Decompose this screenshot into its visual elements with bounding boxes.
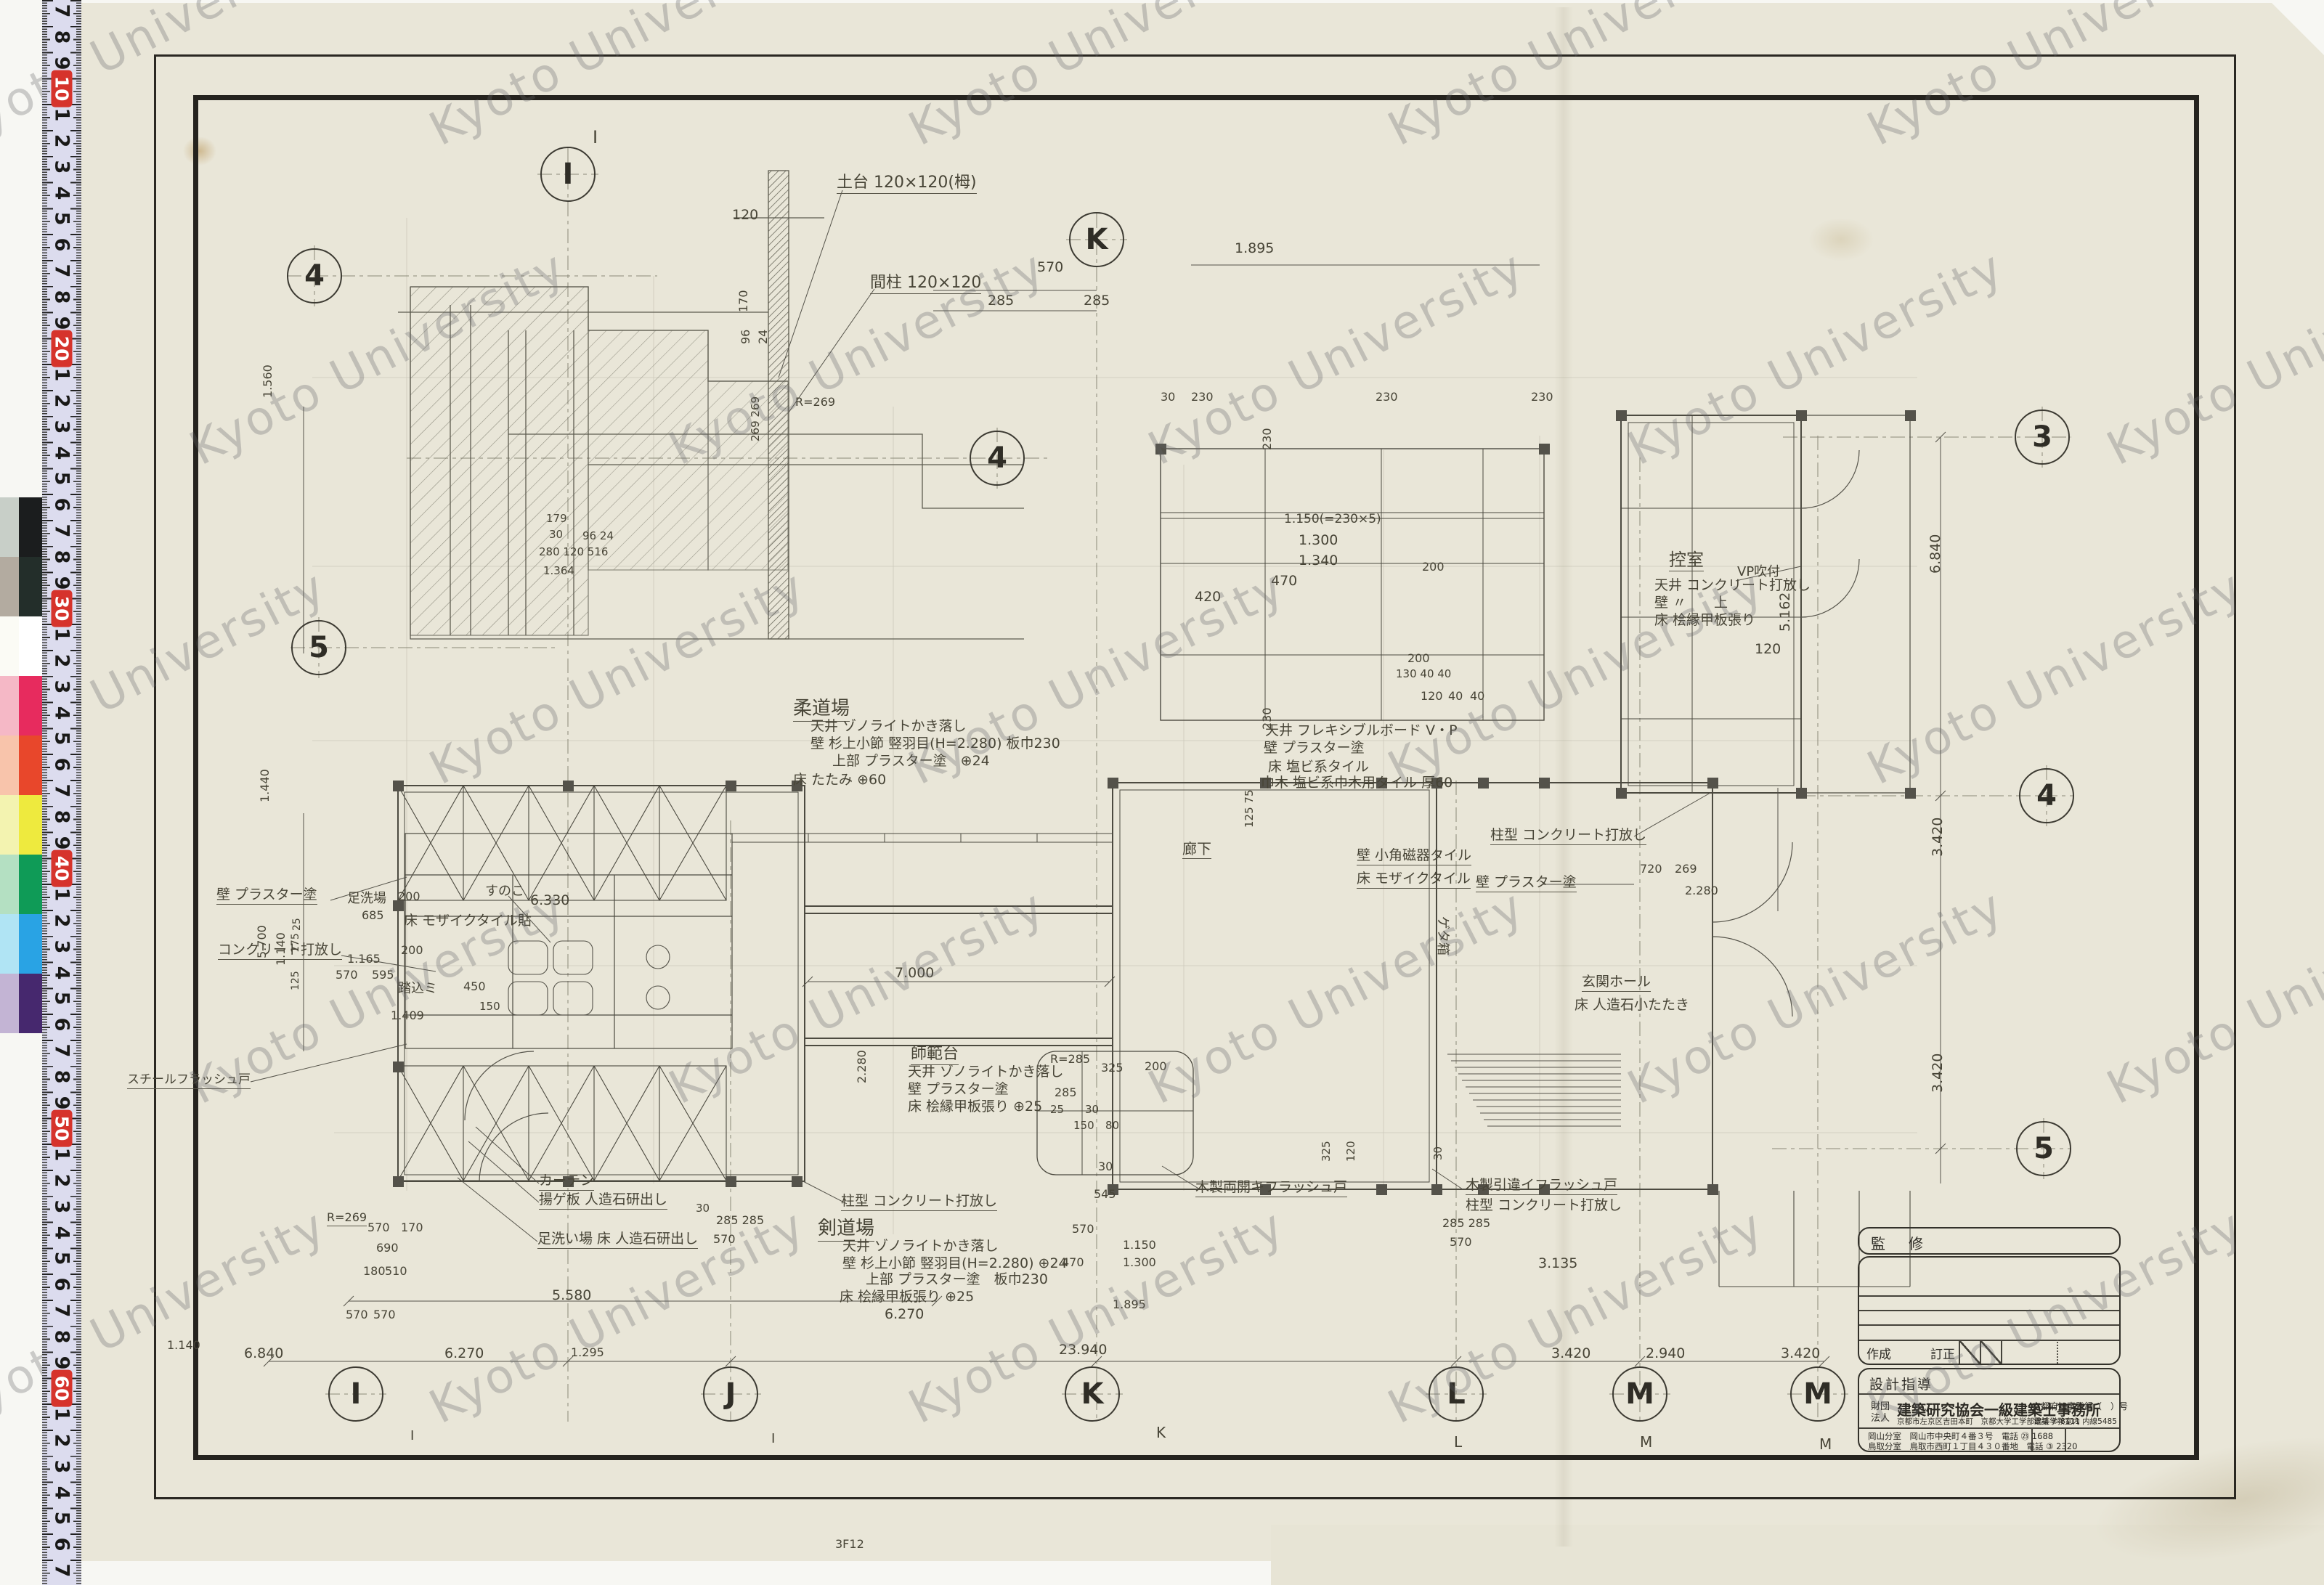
- created-label: 作成: [1866, 1344, 1891, 1362]
- color-patch-row: [0, 855, 42, 914]
- color-patch-strong: [19, 974, 42, 1033]
- ruler-cm-label: 2: [52, 1434, 72, 1448]
- color-patch-light: [0, 616, 19, 676]
- ruler-cm-label: 7: [52, 784, 72, 798]
- design-guidance-label: 設計指導: [1869, 1374, 1933, 1393]
- grid-bubble-3: 3: [2015, 410, 2070, 465]
- color-patch-row: [0, 616, 42, 676]
- ruler-decade-label: 40: [52, 850, 73, 887]
- ruler-cm-label: 5: [52, 472, 72, 486]
- ruler-cm-label: 4: [52, 1226, 72, 1239]
- ruler-decade-label: 50: [52, 1110, 73, 1147]
- grid-bubble-K: K: [1069, 212, 1124, 267]
- grid-bubble-5: 5: [2016, 1121, 2071, 1176]
- ruler-cm-label: 9: [52, 836, 72, 849]
- revision-box: 作成 訂正: [1858, 1256, 2121, 1365]
- color-patch-row: [0, 676, 42, 736]
- grid-bubble-I: I: [328, 1366, 383, 1422]
- ruler-cm-label: 8: [52, 1329, 72, 1343]
- ruler-cm-label: 1: [52, 368, 72, 382]
- ruler-cm-label: 8: [52, 810, 72, 823]
- ruler-cm-label: 3: [52, 1459, 72, 1473]
- color-patch-row: [0, 974, 42, 1033]
- ruler-cm-label: 2: [52, 654, 72, 668]
- ruler-cm-label: 6: [52, 498, 72, 512]
- ruler-cm-label: 8: [52, 1069, 72, 1083]
- ruler-cm-label: 9: [52, 1356, 72, 1369]
- color-patch-row: [0, 736, 42, 795]
- ruler-cm-label: 9: [52, 1096, 72, 1109]
- ruler-cm-label: 1: [52, 1148, 72, 1162]
- grid-bubble-J: J: [703, 1366, 758, 1422]
- ruler-cm-label: 3: [52, 420, 72, 433]
- color-patch-row: [0, 497, 42, 557]
- color-patch-strong: [19, 497, 42, 557]
- ruler-cm-label: 7: [52, 1564, 72, 1578]
- ruler-decade-label: 60: [52, 1370, 73, 1407]
- ruler-cm-label: 3: [52, 1199, 72, 1213]
- color-patch-strong: [19, 616, 42, 676]
- org-type-2: 法人: [1871, 1410, 1890, 1424]
- color-patch-strong: [19, 795, 42, 855]
- color-patch-row: [0, 795, 42, 855]
- ruler-cm-label: 4: [52, 186, 72, 200]
- ruler-cm-label: 2: [52, 1174, 72, 1188]
- ruler-numbers: 7891012345678920123456789301234567894012…: [42, 0, 81, 1585]
- color-patch-light: [0, 795, 19, 855]
- ruler-cm-label: 5: [52, 1512, 72, 1525]
- grid-bubble-5: 5: [291, 620, 346, 675]
- color-patch-light: [0, 914, 19, 974]
- color-calibration-bar: [0, 497, 42, 1033]
- ruler-cm-label: 1: [52, 888, 72, 902]
- ruler-cm-label: 8: [52, 290, 72, 303]
- ruler-cm-label: 8: [52, 30, 72, 44]
- ruler-cm-label: 5: [52, 1252, 72, 1266]
- scanned-blueprint: { "watermark": {"text": "Kyoto Universit…: [0, 0, 2324, 1585]
- ruler-cm-label: 9: [52, 576, 72, 590]
- grid-bubble-I: I: [540, 147, 596, 202]
- color-patch-strong: [19, 855, 42, 914]
- supervision-label: 監 修: [1871, 1232, 1927, 1253]
- branch-tottori: 鳥取分室 鳥取市西町１丁目４３０番地 電話 ③ 2320: [1868, 1441, 2077, 1452]
- ruler-decade-label: 20: [52, 330, 73, 367]
- grid-bubble-M: M: [1612, 1366, 1667, 1422]
- ruler-cm-label: 1: [52, 108, 72, 122]
- ruler-cm-label: 2: [52, 134, 72, 148]
- ruler-cm-label: 9: [52, 316, 72, 330]
- color-patch-light: [0, 855, 19, 914]
- grid-bubble-M: M: [1790, 1366, 1845, 1422]
- ruler-decade-label: 10: [52, 70, 73, 107]
- color-patch-strong: [19, 676, 42, 736]
- ruler-cm-label: 5: [52, 212, 72, 226]
- ruler-decade-label: 30: [52, 590, 73, 627]
- scanner-ruler: 7891012345678920123456789301234567894012…: [42, 0, 81, 1585]
- ruler-cm-label: 4: [52, 446, 72, 460]
- supervision-box: 監 修: [1858, 1227, 2121, 1255]
- color-patch-strong: [19, 557, 42, 616]
- ruler-cm-label: 7: [52, 264, 72, 278]
- ruler-cm-label: 6: [52, 238, 72, 252]
- ruler-cm-label: 3: [52, 680, 72, 693]
- ruler-cm-label: 4: [52, 966, 72, 979]
- grid-bubble-K: K: [1065, 1366, 1120, 1422]
- color-patch-light: [0, 497, 19, 557]
- grid-bubble-4: 4: [2019, 768, 2074, 823]
- ruler-cm-label: 5: [52, 732, 72, 746]
- grid-bubble-L: L: [1429, 1366, 1484, 1422]
- color-patch-strong: [19, 914, 42, 974]
- ruler-cm-label: 7: [52, 4, 72, 18]
- ruler-cm-label: 9: [52, 56, 72, 70]
- grid-bubble-4: 4: [287, 248, 342, 303]
- title-block: 監 修 作成 訂正 設計指導 財団 法人 建築研究協会一級建築士事務所 京都府知…: [1858, 1224, 2128, 1455]
- office-phone: 電話 ⑦ 8111 内線5485: [2033, 1416, 2117, 1427]
- ruler-cm-label: 4: [52, 706, 72, 720]
- color-patch-light: [0, 557, 19, 616]
- color-patch-light: [0, 676, 19, 736]
- ruler-cm-label: 2: [52, 914, 72, 928]
- color-patch-row: [0, 914, 42, 974]
- color-patch-light: [0, 974, 19, 1033]
- ruler-cm-label: 7: [52, 524, 72, 538]
- ruler-cm-label: 2: [52, 394, 72, 408]
- color-patch-strong: [19, 736, 42, 795]
- ruler-cm-label: 7: [52, 1304, 72, 1318]
- ruler-cm-label: 6: [52, 758, 72, 772]
- grid-bubble-4: 4: [970, 431, 1025, 486]
- design-office-box: 設計指導 財団 法人 建築研究協会一級建築士事務所 京都府知事登録（ ）号 京都…: [1858, 1368, 2121, 1452]
- ruler-cm-label: 7: [52, 1044, 72, 1058]
- registration-number: 京都府知事登録（ ）号: [2032, 1400, 2128, 1412]
- ruler-cm-label: 1: [52, 628, 72, 642]
- ruler-cm-label: 5: [52, 992, 72, 1006]
- color-patch-light: [0, 736, 19, 795]
- ruler-cm-label: 3: [52, 160, 72, 174]
- ruler-cm-label: 8: [52, 550, 72, 563]
- ruler-cm-label: 4: [52, 1486, 72, 1499]
- color-patch-row: [0, 557, 42, 616]
- ruler-cm-label: 6: [52, 1538, 72, 1552]
- revised-label: 訂正: [1930, 1344, 1955, 1362]
- ruler-cm-label: 3: [52, 940, 72, 953]
- ruler-cm-label: 6: [52, 1018, 72, 1032]
- ruler-cm-label: 6: [52, 1278, 72, 1292]
- ruler-cm-label: 1: [52, 1408, 72, 1422]
